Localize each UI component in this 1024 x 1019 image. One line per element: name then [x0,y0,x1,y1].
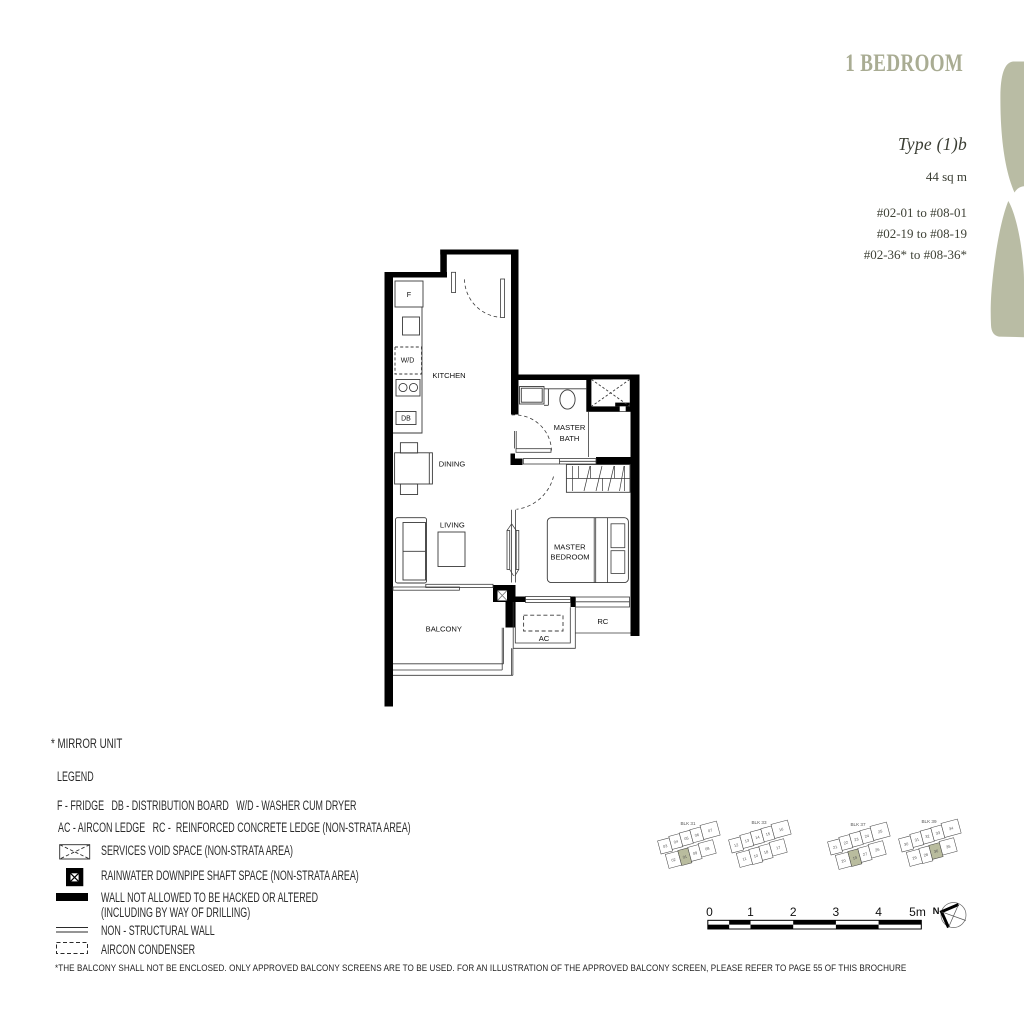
svg-text:DINING: DINING [439,460,466,469]
svg-text:0: 0 [706,905,713,919]
svg-text:2: 2 [790,905,797,919]
svg-text:W/D: W/D [401,357,415,364]
svg-text:MASTER: MASTER [554,423,586,432]
svg-text:LIVING: LIVING [440,521,465,530]
svg-text:BALCONY: BALCONY [426,624,462,633]
svg-text:BLK 31: BLK 31 [680,821,696,826]
svg-text:MASTER: MASTER [554,542,586,551]
svg-text:BLK 39: BLK 39 [921,819,937,824]
svg-text:BLK 33: BLK 33 [751,820,767,825]
svg-text:4: 4 [875,905,882,919]
svg-text:1: 1 [747,905,754,919]
svg-text:DB: DB [401,416,411,423]
svg-text:AC: AC [539,634,550,643]
svg-text:BEDROOM: BEDROOM [550,553,589,562]
svg-text:F: F [407,290,412,299]
svg-text:RC: RC [597,617,608,626]
svg-text:5m: 5m [909,905,926,919]
svg-text:BATH: BATH [560,434,580,443]
svg-text:KITCHEN: KITCHEN [432,371,465,380]
svg-text:3: 3 [833,905,840,919]
svg-text:N: N [933,906,940,917]
svg-text:BLK 37: BLK 37 [850,822,866,827]
